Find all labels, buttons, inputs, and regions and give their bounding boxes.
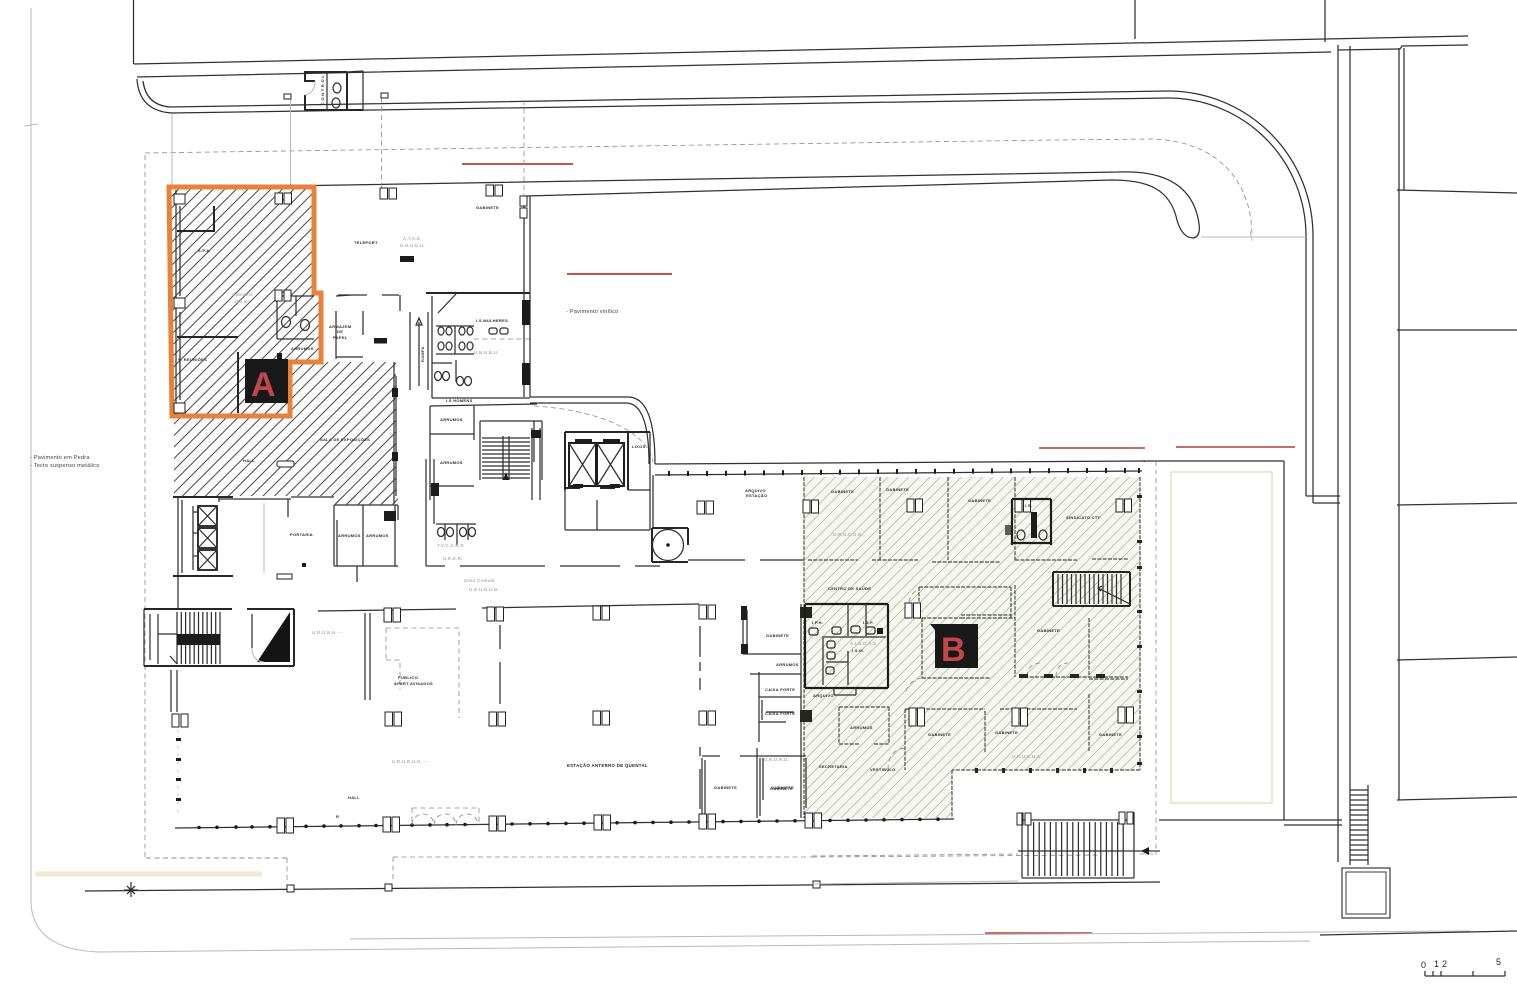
svg-text:CAIXA FORTE: CAIXA FORTE — [765, 711, 795, 716]
svg-text:A: A — [251, 366, 276, 404]
svg-text:- Pavimento vinílico: - Pavimento vinílico — [566, 309, 619, 315]
svg-text:SECRETARIA: SECRETARIA — [819, 764, 848, 769]
svg-text:I.S.F.: I.S.F. — [863, 620, 874, 625]
svg-text:U.R.E.R.: U.R.E.R. — [443, 556, 463, 561]
svg-text:U.R.U.C.U.N.: U.R.U.C.U.N. — [833, 532, 863, 537]
svg-text:U.N.U.N.U.: U.N.U.N.U. — [400, 243, 425, 248]
svg-text:S. REUNIÕES: S. REUNIÕES — [178, 357, 207, 362]
svg-text:R: R — [336, 814, 339, 819]
svg-text:ARRUMOS: ARRUMOS — [291, 346, 314, 351]
svg-text:&PART.AVISADOS: &PART.AVISADOS — [394, 681, 433, 686]
svg-text:T.V.C.A.B.O: T.V.C.A.B.O — [437, 543, 464, 548]
svg-text:I.S.MULHERES: I.S.MULHERES — [476, 318, 508, 323]
svg-text:CONTROL: CONTROL — [320, 75, 325, 105]
svg-text:A.I.N.D.A.S: A.I.N.D.A.S — [850, 641, 876, 646]
svg-text:ESTAÇÃO: ESTAÇÃO — [746, 493, 767, 498]
svg-text:2: 2 — [1442, 959, 1447, 969]
svg-text:TELEPORT: TELEPORT — [354, 240, 378, 245]
svg-text:150 m²: 150 m² — [234, 299, 250, 304]
svg-text:GABINETE: GABINETE — [771, 785, 794, 790]
svg-text:U.N.U.B.U.: U.N.U.B.U. — [474, 350, 499, 355]
svg-text:CAIXA FORTE: CAIXA FORTE — [765, 687, 795, 692]
svg-text:GABINETE: GABINETE — [1037, 628, 1060, 633]
svg-text:1: 1 — [1434, 959, 1439, 969]
svg-text:I.S HOMENS: I.S HOMENS — [446, 398, 473, 403]
svg-text:Gabinete: Gabinete — [232, 292, 253, 297]
svg-text:GABINETE: GABINETE — [968, 498, 991, 503]
svg-text:GABINETE: GABINETE — [1099, 732, 1122, 737]
svg-text:GABINETE: GABINETE — [766, 633, 789, 638]
svg-text:GABINETE: GABINETE — [831, 489, 854, 494]
svg-text:PUBLICO: PUBLICO — [398, 675, 418, 680]
svg-text:ARRUMOS: ARRUMOS — [338, 533, 361, 538]
svg-text:HALL: HALL — [243, 458, 255, 463]
svg-text:GABINETE: GABINETE — [476, 205, 499, 210]
svg-text:B: B — [941, 631, 966, 669]
svg-text:RAMPA: RAMPA — [420, 346, 425, 362]
svg-text:0: 0 — [1421, 960, 1426, 970]
svg-text:CENTRO DE SAÚDE: CENTRO DE SAÚDE — [828, 586, 871, 591]
svg-text:5: 5 — [1496, 957, 1501, 967]
svg-text:LIXOS: LIXOS — [632, 444, 646, 449]
svg-text:ARRUMOS: ARRUMOS — [440, 417, 463, 422]
svg-text:U.R.U.R.U.N. ···: U.R.U.R.U.N. ··· — [392, 759, 429, 764]
svg-text:U.R.U.R.U. ···: U.R.U.R.U. ··· — [312, 630, 344, 635]
svg-text:ARRUMOS: ARRUMOS — [366, 533, 389, 538]
svg-text:SALA DE EXPOSIÇÕES: SALA DE EXPOSIÇÕES — [320, 437, 370, 442]
svg-text:PORTARIA: PORTARIA — [290, 532, 313, 537]
svg-text:GABINETE: GABINETE — [995, 730, 1018, 735]
svg-text:U.R.U.N.U.N.: U.R.U.N.U.N. — [469, 587, 499, 592]
svg-text:SINDICATO CTT: SINDICATO CTT — [1066, 515, 1101, 520]
svg-text:DE: DE — [337, 329, 343, 334]
svg-text:- Tecto suspenso metálico: - Tecto suspenso metálico — [30, 463, 100, 469]
svg-text:ARRUMOS: ARRUMOS — [440, 460, 463, 465]
svg-text:ARRUMOS: ARRUMOS — [850, 725, 873, 730]
svg-text:VESTIBULO: VESTIBULO — [870, 767, 896, 772]
svg-text:GABINETE: GABINETE — [928, 732, 951, 737]
svg-text:GABINETE: GABINETE — [886, 487, 909, 492]
svg-text:A.T.A.E.: A.T.A.E. — [403, 236, 422, 241]
svg-text:ESTAÇÃO ANTERRO DE QUENTAL: ESTAÇÃO ANTERRO DE QUENTAL — [567, 763, 648, 768]
svg-text:I.S.M.: I.S.M. — [852, 648, 864, 653]
svg-text:- Pavimento em Pedra: - Pavimento em Pedra — [30, 455, 90, 461]
svg-text:ARQUIVO: ARQUIVO — [813, 693, 834, 698]
svg-text:HALL: HALL — [348, 795, 360, 800]
svg-text:I.S.: I.S. — [1025, 503, 1032, 508]
svg-text:U.R.U.C.U.A.: U.R.U.C.U.A. — [1012, 754, 1042, 759]
svg-text:I.P.H.: I.P.H. — [812, 620, 823, 625]
svg-text:U.R.U.R.U.: U.R.U.R.U. — [764, 757, 789, 762]
svg-text:ARRUMOS: ARRUMOS — [776, 662, 799, 667]
svg-text:GABINETE: GABINETE — [714, 785, 737, 790]
svg-text:S.P.A.: S.P.A. — [198, 248, 211, 253]
svg-text:PAPEL: PAPEL — [333, 335, 348, 340]
svg-text:Zona Comum: Zona Comum — [464, 578, 495, 583]
